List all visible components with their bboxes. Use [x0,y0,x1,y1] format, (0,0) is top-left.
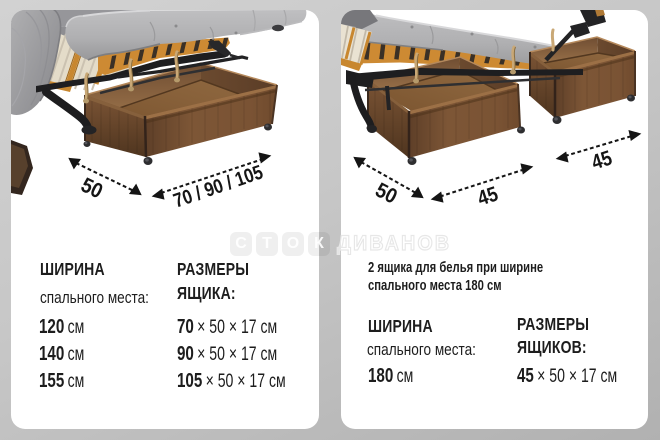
svg-text:45: 45 [475,182,501,210]
svg-text:70 / 90 / 105: 70 / 90 / 105 [171,161,266,212]
svg-text:45: 45 [589,146,615,174]
svg-text:50: 50 [77,174,106,204]
